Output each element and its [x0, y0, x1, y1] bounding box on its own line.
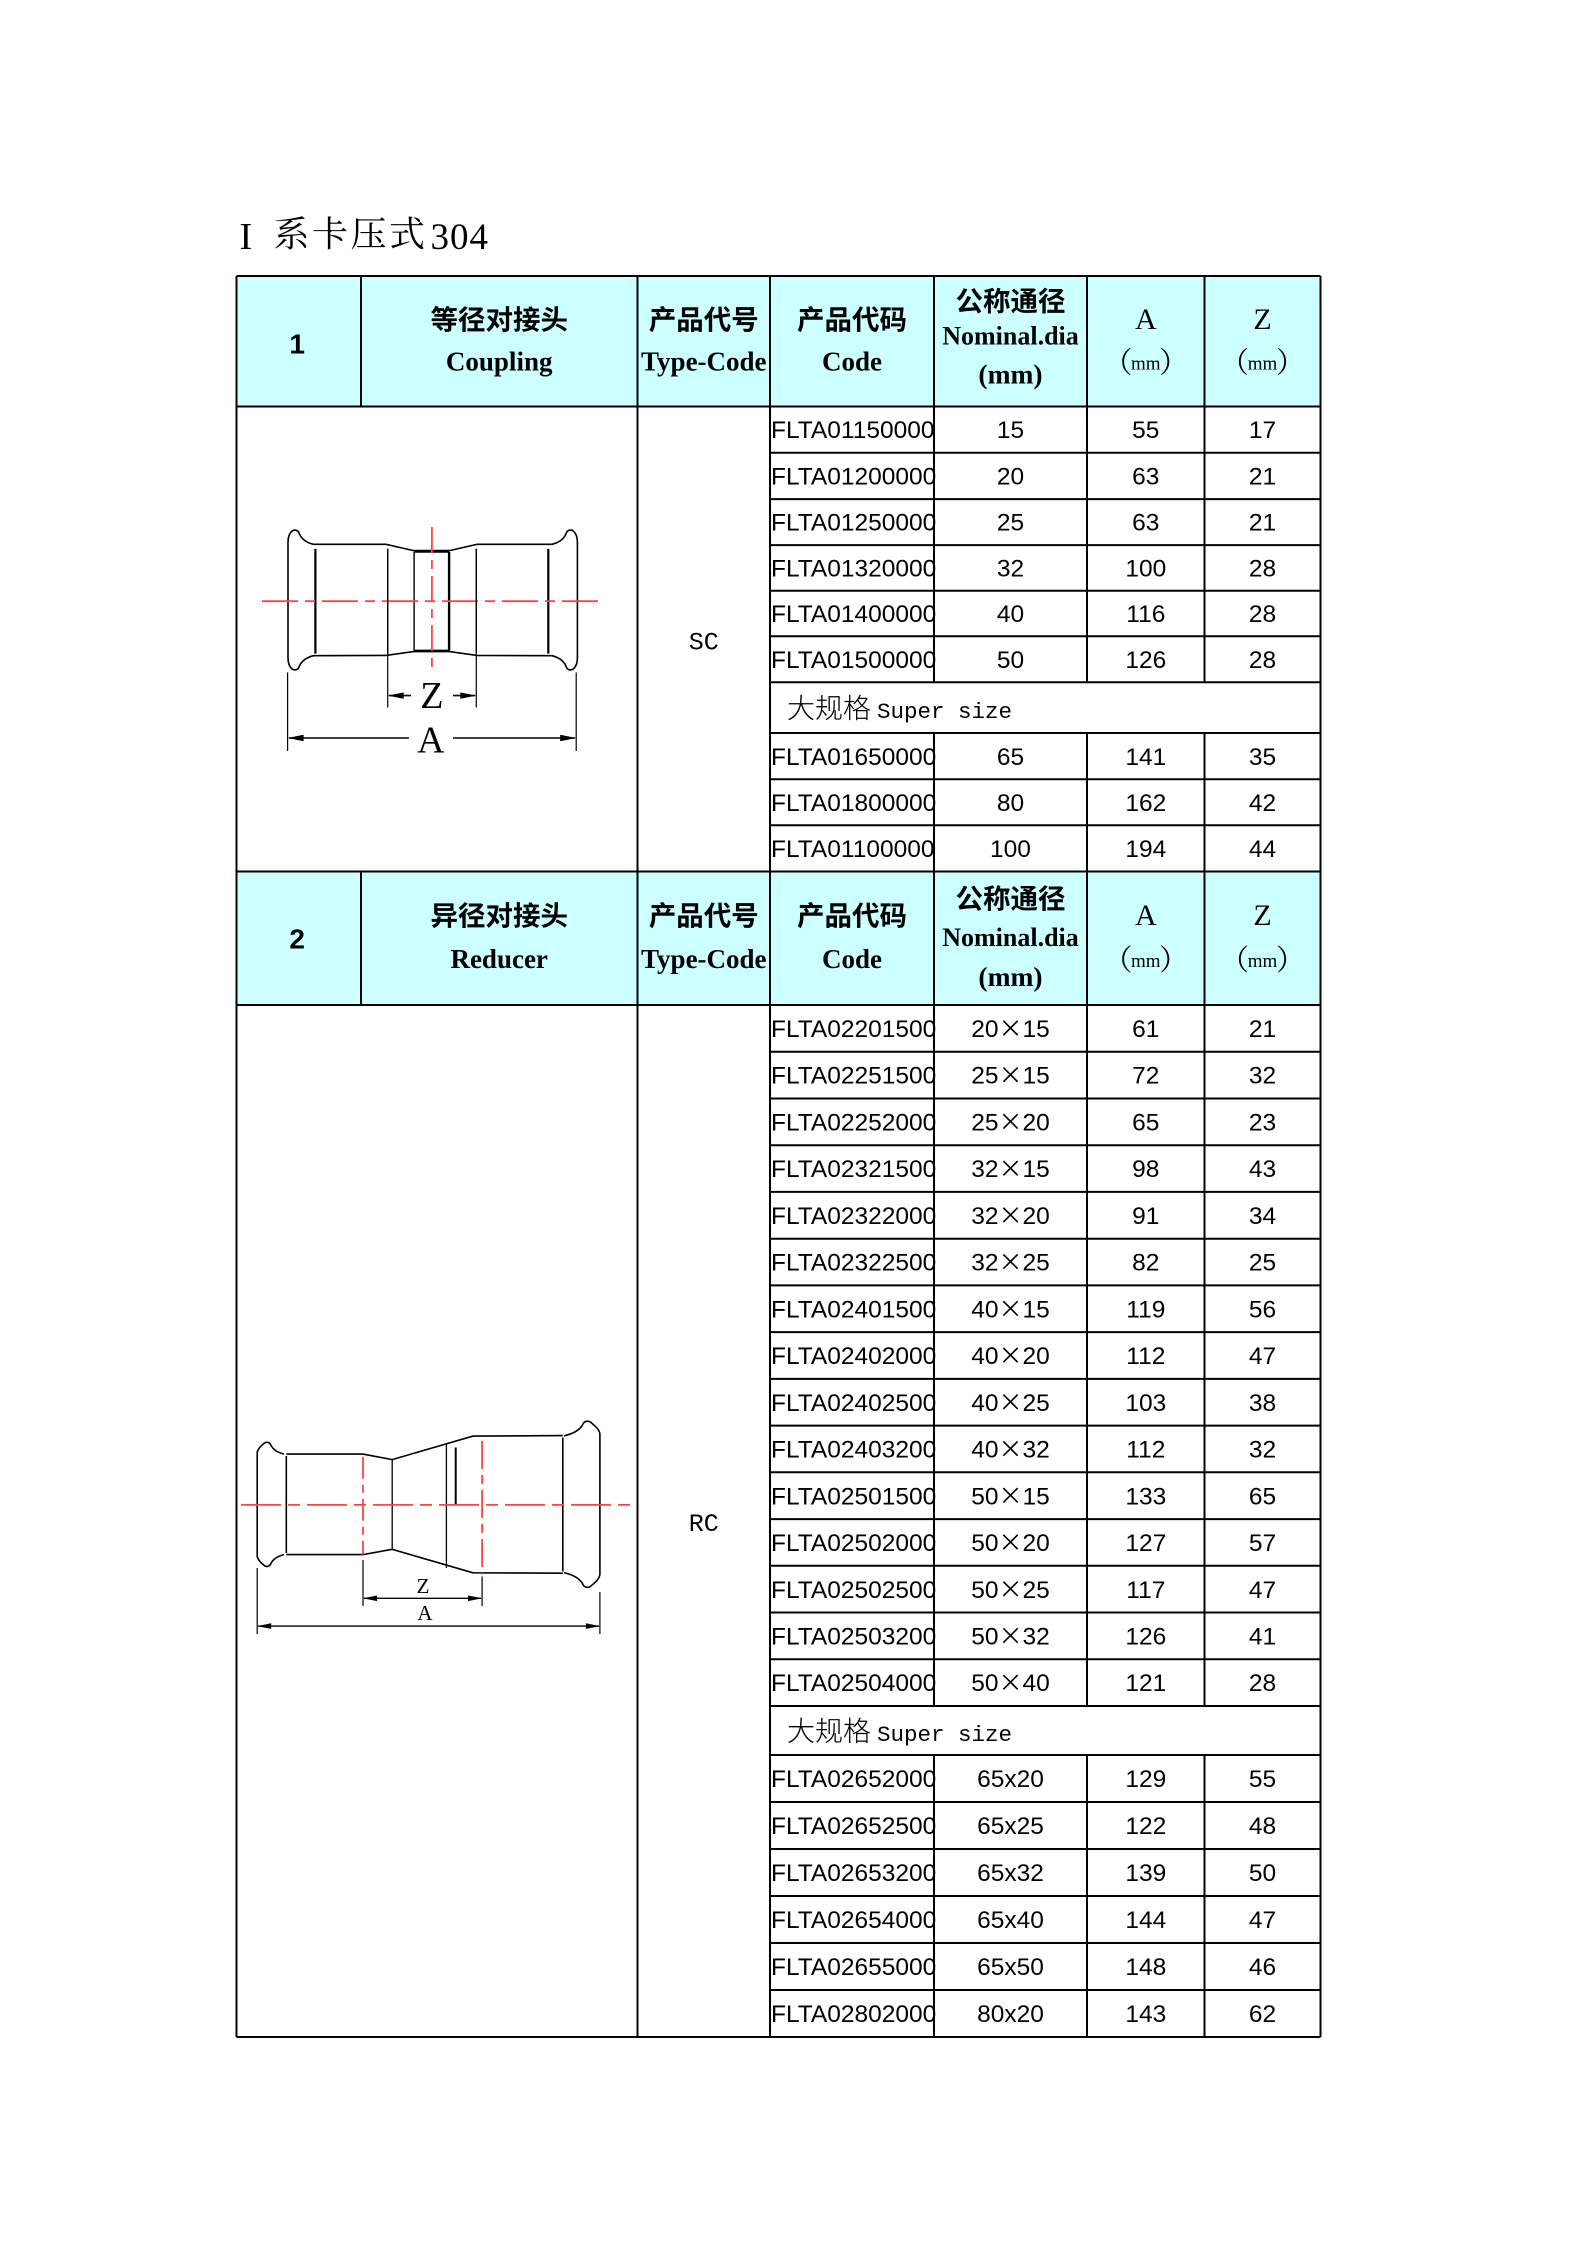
svg-text:mm: mm — [1131, 354, 1161, 375]
svg-text:I: I — [240, 216, 253, 258]
svg-text:72: 72 — [1132, 1063, 1159, 1090]
svg-text:1: 1 — [289, 329, 305, 360]
svg-text:65x32: 65x32 — [977, 1860, 1044, 1887]
svg-text:100: 100 — [1125, 556, 1166, 583]
svg-text:Super size: Super size — [877, 1722, 1012, 1748]
svg-text:FLTA02403200: FLTA02403200 — [771, 1437, 936, 1464]
svg-text:103: 103 — [1125, 1390, 1166, 1417]
svg-text:80: 80 — [997, 790, 1024, 817]
svg-text:65: 65 — [997, 744, 1024, 771]
svg-text:32: 32 — [971, 1203, 998, 1230]
svg-text:122: 122 — [1125, 1813, 1166, 1840]
svg-text:FLTA02655000: FLTA02655000 — [771, 1954, 936, 1981]
svg-text:46: 46 — [1249, 1954, 1276, 1981]
svg-text:15: 15 — [1023, 1483, 1050, 1510]
svg-text:15: 15 — [1023, 1063, 1050, 1090]
svg-text:50: 50 — [1249, 1860, 1276, 1887]
svg-text:35: 35 — [1249, 744, 1276, 771]
svg-text:FLTA02322500: FLTA02322500 — [771, 1250, 936, 1277]
svg-text:129: 129 — [1125, 1766, 1166, 1793]
svg-text:FLTA02402000: FLTA02402000 — [771, 1343, 936, 1370]
svg-text:65: 65 — [1132, 1109, 1159, 1136]
svg-text:FLTA01500000: FLTA01500000 — [771, 647, 936, 674]
svg-text:mm: mm — [1248, 354, 1278, 375]
svg-text:55: 55 — [1249, 1766, 1276, 1793]
svg-text:Reducer: Reducer — [450, 944, 547, 974]
svg-text:50: 50 — [971, 1483, 998, 1510]
svg-text:FLTA01650000: FLTA01650000 — [771, 744, 936, 771]
svg-text:44: 44 — [1249, 836, 1276, 863]
svg-text:143: 143 — [1125, 2001, 1166, 2028]
svg-text:47: 47 — [1249, 1343, 1276, 1370]
svg-text:25: 25 — [971, 1063, 998, 1090]
svg-text:15: 15 — [1023, 1156, 1050, 1183]
svg-text:50: 50 — [971, 1670, 998, 1697]
svg-text:162: 162 — [1125, 790, 1166, 817]
svg-text:65: 65 — [1249, 1483, 1276, 1510]
svg-text:40: 40 — [997, 601, 1024, 628]
svg-text:40: 40 — [971, 1390, 998, 1417]
svg-text:FLTA02322000: FLTA02322000 — [771, 1203, 936, 1230]
svg-text:20: 20 — [997, 464, 1024, 491]
svg-text:32: 32 — [1249, 1437, 1276, 1464]
svg-text:FLTA02653200: FLTA02653200 — [771, 1860, 936, 1887]
svg-text:63: 63 — [1132, 510, 1159, 537]
svg-text:98: 98 — [1132, 1156, 1159, 1183]
svg-text:15: 15 — [1023, 1016, 1050, 1043]
svg-text:127: 127 — [1125, 1530, 1166, 1557]
svg-text:Coupling: Coupling — [446, 347, 553, 377]
svg-text:23: 23 — [1249, 1109, 1276, 1136]
svg-text:SC: SC — [689, 629, 719, 658]
svg-text:91: 91 — [1132, 1203, 1159, 1230]
svg-text:28: 28 — [1249, 601, 1276, 628]
svg-text:A: A — [417, 720, 445, 762]
svg-text:FLTA02252000: FLTA02252000 — [771, 1109, 936, 1136]
svg-text:Code: Code — [822, 944, 882, 974]
svg-text:50: 50 — [971, 1624, 998, 1651]
svg-text:Z: Z — [420, 675, 443, 717]
svg-text:28: 28 — [1249, 556, 1276, 583]
svg-text:57: 57 — [1249, 1530, 1276, 1557]
svg-text:133: 133 — [1125, 1483, 1166, 1510]
svg-text:FLTA02402500: FLTA02402500 — [771, 1390, 936, 1417]
svg-text:2: 2 — [289, 924, 305, 955]
svg-text:20: 20 — [1023, 1530, 1050, 1557]
svg-text:FLTA02654000: FLTA02654000 — [771, 1907, 936, 1934]
svg-text:21: 21 — [1249, 1016, 1276, 1043]
svg-text:25: 25 — [1023, 1250, 1050, 1277]
svg-text:FLTA01150000: FLTA01150000 — [771, 417, 934, 444]
svg-text:126: 126 — [1125, 647, 1166, 674]
svg-text:20: 20 — [1023, 1109, 1050, 1136]
svg-text:20: 20 — [1023, 1203, 1050, 1230]
svg-text:FLTA02504000: FLTA02504000 — [771, 1670, 936, 1697]
svg-text:Super size: Super size — [877, 699, 1012, 725]
svg-text:43: 43 — [1249, 1156, 1276, 1183]
svg-text:65x25: 65x25 — [977, 1813, 1044, 1840]
svg-text:28: 28 — [1249, 647, 1276, 674]
svg-text:50: 50 — [971, 1577, 998, 1604]
svg-text:Z: Z — [1253, 899, 1271, 932]
svg-text:40: 40 — [971, 1437, 998, 1464]
svg-text:Type-Code: Type-Code — [641, 944, 767, 974]
svg-text:42: 42 — [1249, 790, 1276, 817]
svg-text:FLTA02251500: FLTA02251500 — [771, 1063, 936, 1090]
svg-text:82: 82 — [1132, 1250, 1159, 1277]
svg-text:20: 20 — [1023, 1343, 1050, 1370]
svg-text:32: 32 — [1249, 1063, 1276, 1090]
svg-text:65x20: 65x20 — [977, 1766, 1044, 1793]
svg-text:55: 55 — [1132, 417, 1159, 444]
svg-text:144: 144 — [1125, 1907, 1166, 1934]
svg-text:148: 148 — [1125, 1954, 1166, 1981]
svg-text:A: A — [1135, 899, 1157, 932]
svg-text:50: 50 — [971, 1530, 998, 1557]
svg-text:Code: Code — [822, 347, 882, 377]
svg-text:FLTA01200000: FLTA01200000 — [771, 464, 936, 491]
svg-text:32: 32 — [971, 1156, 998, 1183]
svg-text:25: 25 — [1249, 1250, 1276, 1277]
svg-text:Nominal.dia: Nominal.dia — [942, 923, 1079, 952]
svg-text:Nominal.dia: Nominal.dia — [942, 322, 1079, 351]
svg-text:119: 119 — [1126, 1296, 1165, 1323]
svg-text:FLTA02652500: FLTA02652500 — [771, 1813, 936, 1840]
svg-text:(mm): (mm) — [978, 359, 1042, 390]
svg-text:141: 141 — [1125, 744, 1166, 771]
svg-text:FLTA01250000: FLTA01250000 — [771, 510, 936, 537]
svg-text:FLTA02502500: FLTA02502500 — [771, 1577, 936, 1604]
svg-text:mm: mm — [1131, 951, 1161, 972]
svg-text:121: 121 — [1125, 1670, 1166, 1697]
svg-text:Z: Z — [1253, 303, 1271, 336]
svg-text:25: 25 — [1023, 1390, 1050, 1417]
svg-text:(mm): (mm) — [978, 961, 1042, 992]
svg-text:65x40: 65x40 — [977, 1907, 1044, 1934]
svg-text:FLTA01320000: FLTA01320000 — [771, 556, 936, 583]
svg-text:FLTA02503200: FLTA02503200 — [771, 1624, 936, 1651]
svg-text:A: A — [417, 1601, 433, 1625]
svg-text:38: 38 — [1249, 1390, 1276, 1417]
svg-text:47: 47 — [1249, 1577, 1276, 1604]
svg-text:63: 63 — [1132, 464, 1159, 491]
svg-text:FLTA02652000: FLTA02652000 — [771, 1766, 936, 1793]
svg-text:34: 34 — [1249, 1203, 1276, 1230]
svg-text:56: 56 — [1249, 1296, 1276, 1323]
svg-text:Z: Z — [417, 1574, 430, 1598]
svg-text:FLTA01800000: FLTA01800000 — [771, 790, 936, 817]
svg-text:RC: RC — [689, 1510, 719, 1539]
svg-text:194: 194 — [1125, 836, 1166, 863]
svg-text:FLTA02321500: FLTA02321500 — [771, 1156, 936, 1183]
svg-text:32: 32 — [1023, 1437, 1050, 1464]
svg-text:mm: mm — [1248, 951, 1278, 972]
svg-text:126: 126 — [1125, 1624, 1166, 1651]
svg-text:40: 40 — [1023, 1670, 1050, 1697]
svg-text:304: 304 — [431, 217, 490, 258]
svg-text:32: 32 — [971, 1250, 998, 1277]
svg-text:25: 25 — [997, 510, 1024, 537]
svg-text:25: 25 — [1023, 1577, 1050, 1604]
svg-text:28: 28 — [1249, 1670, 1276, 1697]
svg-text:116: 116 — [1126, 601, 1165, 628]
svg-text:112: 112 — [1126, 1437, 1165, 1464]
svg-text:65x50: 65x50 — [977, 1954, 1044, 1981]
svg-text:FLTA01400000: FLTA01400000 — [771, 601, 936, 628]
svg-text:139: 139 — [1125, 1860, 1166, 1887]
svg-text:100: 100 — [990, 836, 1031, 863]
svg-text:17: 17 — [1249, 417, 1276, 444]
svg-text:20: 20 — [971, 1016, 998, 1043]
svg-text:Type-Code: Type-Code — [641, 347, 767, 377]
svg-text:A: A — [1135, 303, 1157, 336]
svg-text:32: 32 — [997, 556, 1024, 583]
svg-text:21: 21 — [1249, 464, 1276, 491]
svg-text:21: 21 — [1249, 510, 1276, 537]
svg-text:50: 50 — [997, 647, 1024, 674]
svg-text:48: 48 — [1249, 1813, 1276, 1840]
svg-text:25: 25 — [971, 1109, 998, 1136]
svg-text:15: 15 — [1023, 1296, 1050, 1323]
svg-text:FLTA01100000: FLTA01100000 — [771, 836, 934, 863]
svg-text:62: 62 — [1249, 2001, 1276, 2028]
svg-text:FLTA02401500: FLTA02401500 — [771, 1296, 936, 1323]
svg-text:61: 61 — [1132, 1016, 1159, 1043]
svg-text:41: 41 — [1249, 1624, 1276, 1651]
svg-text:112: 112 — [1126, 1343, 1165, 1370]
svg-text:15: 15 — [997, 417, 1024, 444]
svg-text:FLTA02201500: FLTA02201500 — [771, 1016, 936, 1043]
svg-text:40: 40 — [971, 1343, 998, 1370]
svg-text:FLTA02502000: FLTA02502000 — [771, 1530, 936, 1557]
svg-text:40: 40 — [971, 1296, 998, 1323]
svg-text:32: 32 — [1023, 1624, 1050, 1651]
svg-text:80x20: 80x20 — [977, 2001, 1044, 2028]
svg-text:FLTA02802000: FLTA02802000 — [771, 2001, 936, 2028]
svg-text:FLTA02501500: FLTA02501500 — [771, 1483, 936, 1510]
svg-text:117: 117 — [1126, 1577, 1165, 1604]
svg-text:47: 47 — [1249, 1907, 1276, 1934]
